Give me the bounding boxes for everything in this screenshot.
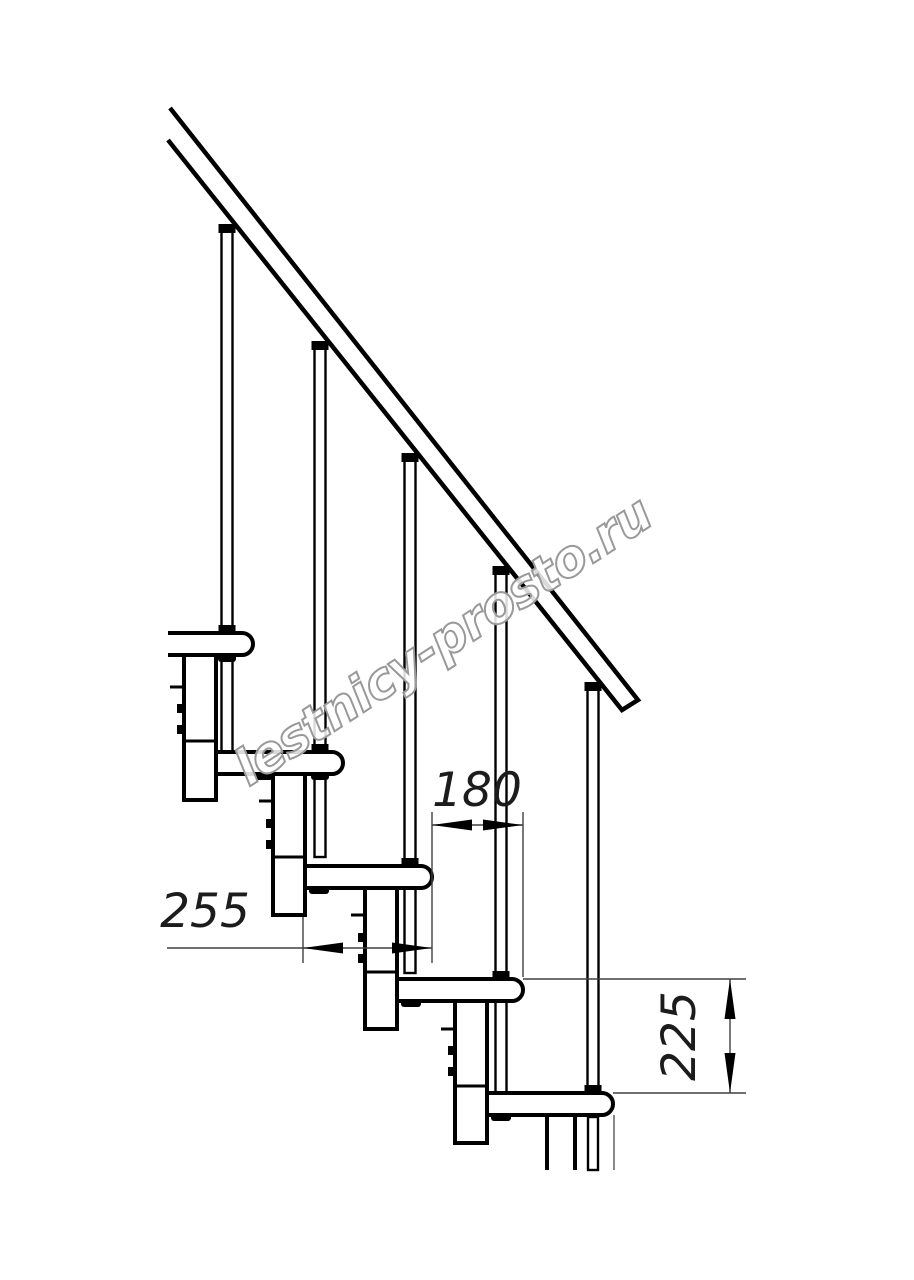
arrowhead-left xyxy=(432,820,472,831)
handrail xyxy=(168,108,638,710)
baluster-collar xyxy=(219,625,236,633)
tread xyxy=(168,633,253,655)
baluster-lower-rod xyxy=(588,1117,598,1170)
baluster xyxy=(585,682,602,1093)
bolt xyxy=(448,1046,455,1055)
tread xyxy=(487,1093,613,1115)
baluster-lower-rod xyxy=(496,1001,507,1093)
baluster-lower-rod xyxy=(315,774,326,857)
bolt-tab xyxy=(491,1113,511,1121)
baluster-cap xyxy=(219,224,236,233)
bolt-tab xyxy=(401,999,421,1007)
arrowhead-up xyxy=(725,979,736,1019)
baluster xyxy=(219,224,236,633)
support-column xyxy=(259,774,305,915)
bolt xyxy=(266,840,273,849)
baluster-lower-rod xyxy=(405,888,416,973)
arrowhead-left xyxy=(303,943,343,954)
bolt-tab xyxy=(309,886,329,894)
bolt xyxy=(358,954,365,963)
baluster-cap xyxy=(312,341,329,350)
bolt xyxy=(266,819,273,828)
baluster-collar xyxy=(585,1085,602,1093)
support-column xyxy=(547,1115,575,1170)
tread xyxy=(397,979,523,1001)
bolt-tab xyxy=(311,772,329,780)
dimension-180-label: 180 xyxy=(432,763,522,818)
dimension-225-label: 225 xyxy=(652,991,707,1081)
support-column xyxy=(170,655,216,800)
arrowhead-down xyxy=(725,1053,736,1093)
bolt xyxy=(177,704,184,713)
dimension-180: 180 xyxy=(432,763,523,977)
bolt xyxy=(358,933,365,942)
baluster-collar xyxy=(402,858,419,866)
support-column xyxy=(441,1001,487,1143)
bolt xyxy=(177,725,184,734)
baluster-lower-rod xyxy=(222,655,233,752)
baluster-cap xyxy=(402,453,419,462)
dimension-255-label: 255 xyxy=(160,884,250,939)
bolt-tab xyxy=(218,654,236,662)
tread xyxy=(305,866,432,888)
support-column xyxy=(351,888,397,1029)
dimension-225: 225 xyxy=(523,979,746,1093)
bolt xyxy=(448,1067,455,1076)
technical-drawing-canvas: 180 255 225 lestnicy-prosto.ru xyxy=(0,0,914,1280)
staircase-drawing-svg: 180 255 225 lestnicy-prosto.ru xyxy=(0,0,914,1280)
baluster-collar xyxy=(493,971,510,979)
baluster-cap xyxy=(585,682,602,691)
